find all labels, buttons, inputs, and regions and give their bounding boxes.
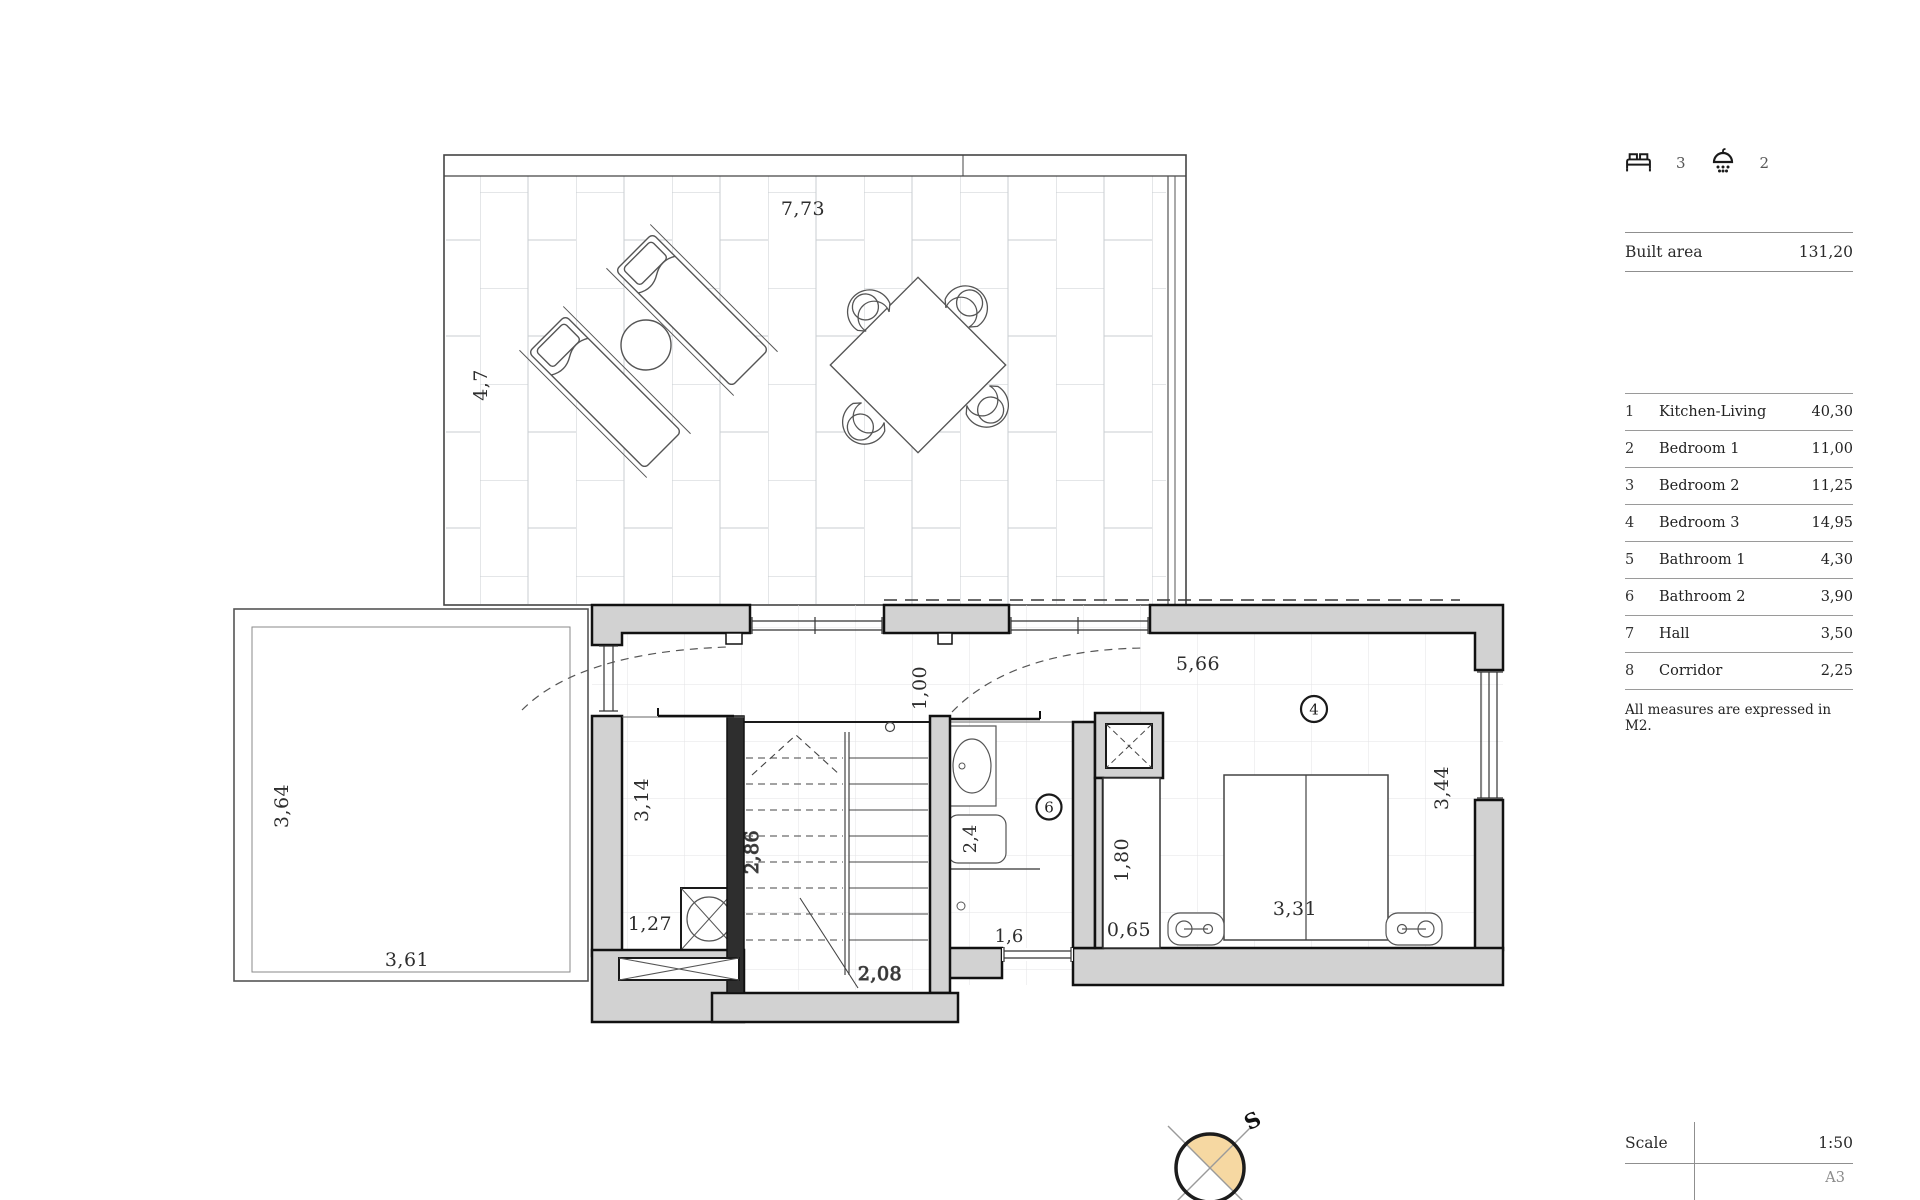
- bed-width-dim: 3,31: [1273, 898, 1317, 920]
- table-row: 5 Bathroom 1 4,30: [1625, 541, 1853, 578]
- scale-value: 1:50: [1818, 1134, 1853, 1152]
- table-row: 2 Bedroom 1 11,00: [1625, 430, 1853, 467]
- wall-bath-bottom-left: [948, 948, 1002, 978]
- wall-stair-right: [930, 716, 950, 993]
- wall-bedroom-right-leg: [1475, 800, 1503, 950]
- room-num: 2: [1625, 441, 1659, 457]
- window-bath-bottom: [1002, 947, 1073, 962]
- patio-height-dim: 3,64: [271, 784, 293, 828]
- table-row: 6 Bathroom 2 3,90: [1625, 578, 1853, 615]
- feature-icons-row: 3 2: [1625, 135, 1769, 191]
- terrace-width-dim: 7,73: [781, 198, 825, 220]
- patio: 3,64 3,61: [234, 609, 588, 981]
- room-number-4: 4: [1309, 701, 1319, 719]
- room-num: 7: [1625, 626, 1659, 642]
- wall-storage-left: [592, 716, 622, 956]
- wall-closet-left-sliver: [1095, 778, 1103, 948]
- room-area: 14,95: [1811, 515, 1853, 531]
- bed-icon: [1625, 149, 1652, 177]
- terrace: 7,73 4,7: [444, 155, 1186, 605]
- scale-row: Scale 1:50: [1625, 1122, 1853, 1164]
- room-name: Bedroom 2: [1659, 478, 1811, 494]
- floor-plan-sheet: 7,73 4,7: [0, 0, 1920, 1200]
- built-area-value: 131,20: [1799, 243, 1853, 261]
- table-row: 4 Bedroom 3 14,95: [1625, 504, 1853, 541]
- room-name: Hall: [1659, 626, 1821, 642]
- nightstand-right: [1386, 913, 1442, 945]
- room-num: 4: [1625, 515, 1659, 531]
- scale-label: Scale: [1625, 1134, 1668, 1152]
- room-area: 40,30: [1811, 404, 1853, 420]
- compass-south-label: S: [1240, 1106, 1265, 1135]
- room-area: 3,90: [1821, 589, 1853, 605]
- storage-vent-hatch: [619, 958, 739, 980]
- paper-size: A3: [1825, 1170, 1845, 1186]
- stairwell-floor: [744, 722, 930, 990]
- closet-depth-dim: 1,80: [1111, 838, 1133, 882]
- table-row: 1 Kitchen-Living 40,30: [1625, 393, 1853, 430]
- room-name: Bathroom 2: [1659, 589, 1821, 605]
- table-row: 7 Hall 3,50: [1625, 615, 1853, 652]
- bedroom-count: 3: [1676, 154, 1686, 172]
- compass: S: [1168, 1106, 1265, 1200]
- room-area: 3,50: [1821, 626, 1853, 642]
- bedroom-top-dim: 5,66: [1176, 653, 1220, 675]
- built-area-row: Built area 131,20: [1625, 232, 1853, 272]
- built-area-label: Built area: [1625, 243, 1703, 261]
- table-row: 8 Corridor 2,25: [1625, 652, 1853, 689]
- sink-counter: [948, 726, 996, 806]
- room-name: Bedroom 3: [1659, 515, 1811, 531]
- room-num: 8: [1625, 663, 1659, 679]
- room-num: 5: [1625, 552, 1659, 568]
- shaft-x-box: [1106, 724, 1152, 768]
- legend-sidebar: 3 2 Built area 131,20 1 Kitchen-Living 4…: [1625, 135, 1853, 1200]
- wall-bedroom-bottom: [1073, 948, 1503, 985]
- door-jamb-corridor: [938, 633, 952, 644]
- room-area: 11,25: [1811, 478, 1853, 494]
- corridor-width-dim: 1,00: [909, 666, 931, 710]
- terrace-tiles: [446, 176, 1166, 604]
- room-name: Bathroom 1: [1659, 552, 1821, 568]
- storage-width-dim: 1,27: [628, 913, 672, 935]
- terrace-height-dim: 4,7: [470, 369, 492, 401]
- wall-stair-compartment-bottom: [712, 993, 958, 1022]
- storage-height-dim: 3,14: [631, 778, 653, 822]
- stairs-width-dim: 2,08: [858, 963, 902, 985]
- tub-dim: 2,4: [960, 825, 981, 854]
- bedroom-right-dim: 3,44: [1431, 766, 1453, 810]
- patio-width-dim: 3,61: [385, 949, 429, 971]
- room-num: 1: [1625, 404, 1659, 420]
- room-number-6: 6: [1044, 799, 1054, 817]
- room-area: 4,30: [1821, 552, 1853, 568]
- closet-width-dim: 0,65: [1107, 919, 1151, 941]
- room-name: Kitchen-Living: [1659, 404, 1811, 420]
- room-name: Bedroom 1: [1659, 441, 1811, 457]
- room-area: 11,00: [1811, 441, 1853, 457]
- room-area: 2,25: [1821, 663, 1853, 679]
- room-name: Corridor: [1659, 663, 1821, 679]
- rooms-table: 1 Kitchen-Living 40,30 2 Bedroom 1 11,00…: [1625, 393, 1853, 690]
- door-jamb-hall: [726, 633, 742, 644]
- scale-block: Scale 1:50 A3: [1625, 1122, 1853, 1200]
- measures-note: All measures are expressed in M2.: [1625, 702, 1853, 734]
- bath-window-dim: 1,6: [995, 926, 1024, 947]
- shower-icon: [1710, 148, 1736, 179]
- wall-stair-left: [727, 716, 744, 993]
- closet-strip: 1,80 0,65: [1103, 778, 1160, 948]
- wall-corridor-top: [884, 605, 1009, 633]
- wall-bath-right: [1073, 722, 1095, 948]
- table-row: 3 Bedroom 2 11,25: [1625, 467, 1853, 504]
- room-num: 3: [1625, 478, 1659, 494]
- terrace-side-table: [621, 320, 671, 370]
- room-num: 6: [1625, 589, 1659, 605]
- bathroom-count: 2: [1760, 154, 1770, 172]
- nightstand-left: [1168, 913, 1224, 945]
